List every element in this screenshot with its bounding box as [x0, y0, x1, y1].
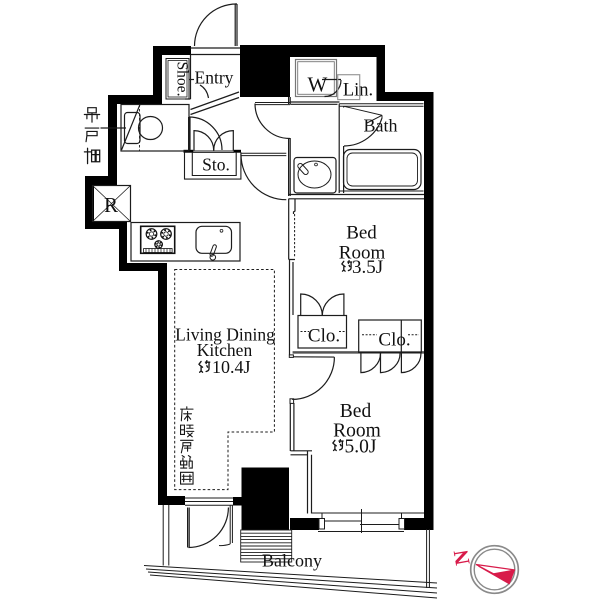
svg-text:W: W: [308, 73, 328, 97]
svg-text:Bath: Bath: [364, 116, 398, 136]
svg-text:Shoe.: Shoe.: [174, 62, 191, 97]
svg-text:Lin.: Lin.: [343, 81, 373, 101]
svg-text:Entry: Entry: [195, 68, 234, 88]
svg-text:5.0J: 5.0J: [345, 437, 377, 458]
svg-text:Bed: Bed: [346, 223, 377, 244]
svg-text:3.5J: 3.5J: [352, 257, 383, 278]
svg-text:Balcony: Balcony: [262, 551, 322, 571]
svg-text:Clo.: Clo.: [378, 330, 410, 351]
svg-text:Bed: Bed: [340, 401, 372, 422]
svg-text:R: R: [104, 193, 118, 217]
svg-text:Sto.: Sto.: [202, 155, 230, 175]
svg-text:Clo.: Clo.: [308, 326, 340, 347]
svg-text:10.4J: 10.4J: [212, 357, 251, 377]
